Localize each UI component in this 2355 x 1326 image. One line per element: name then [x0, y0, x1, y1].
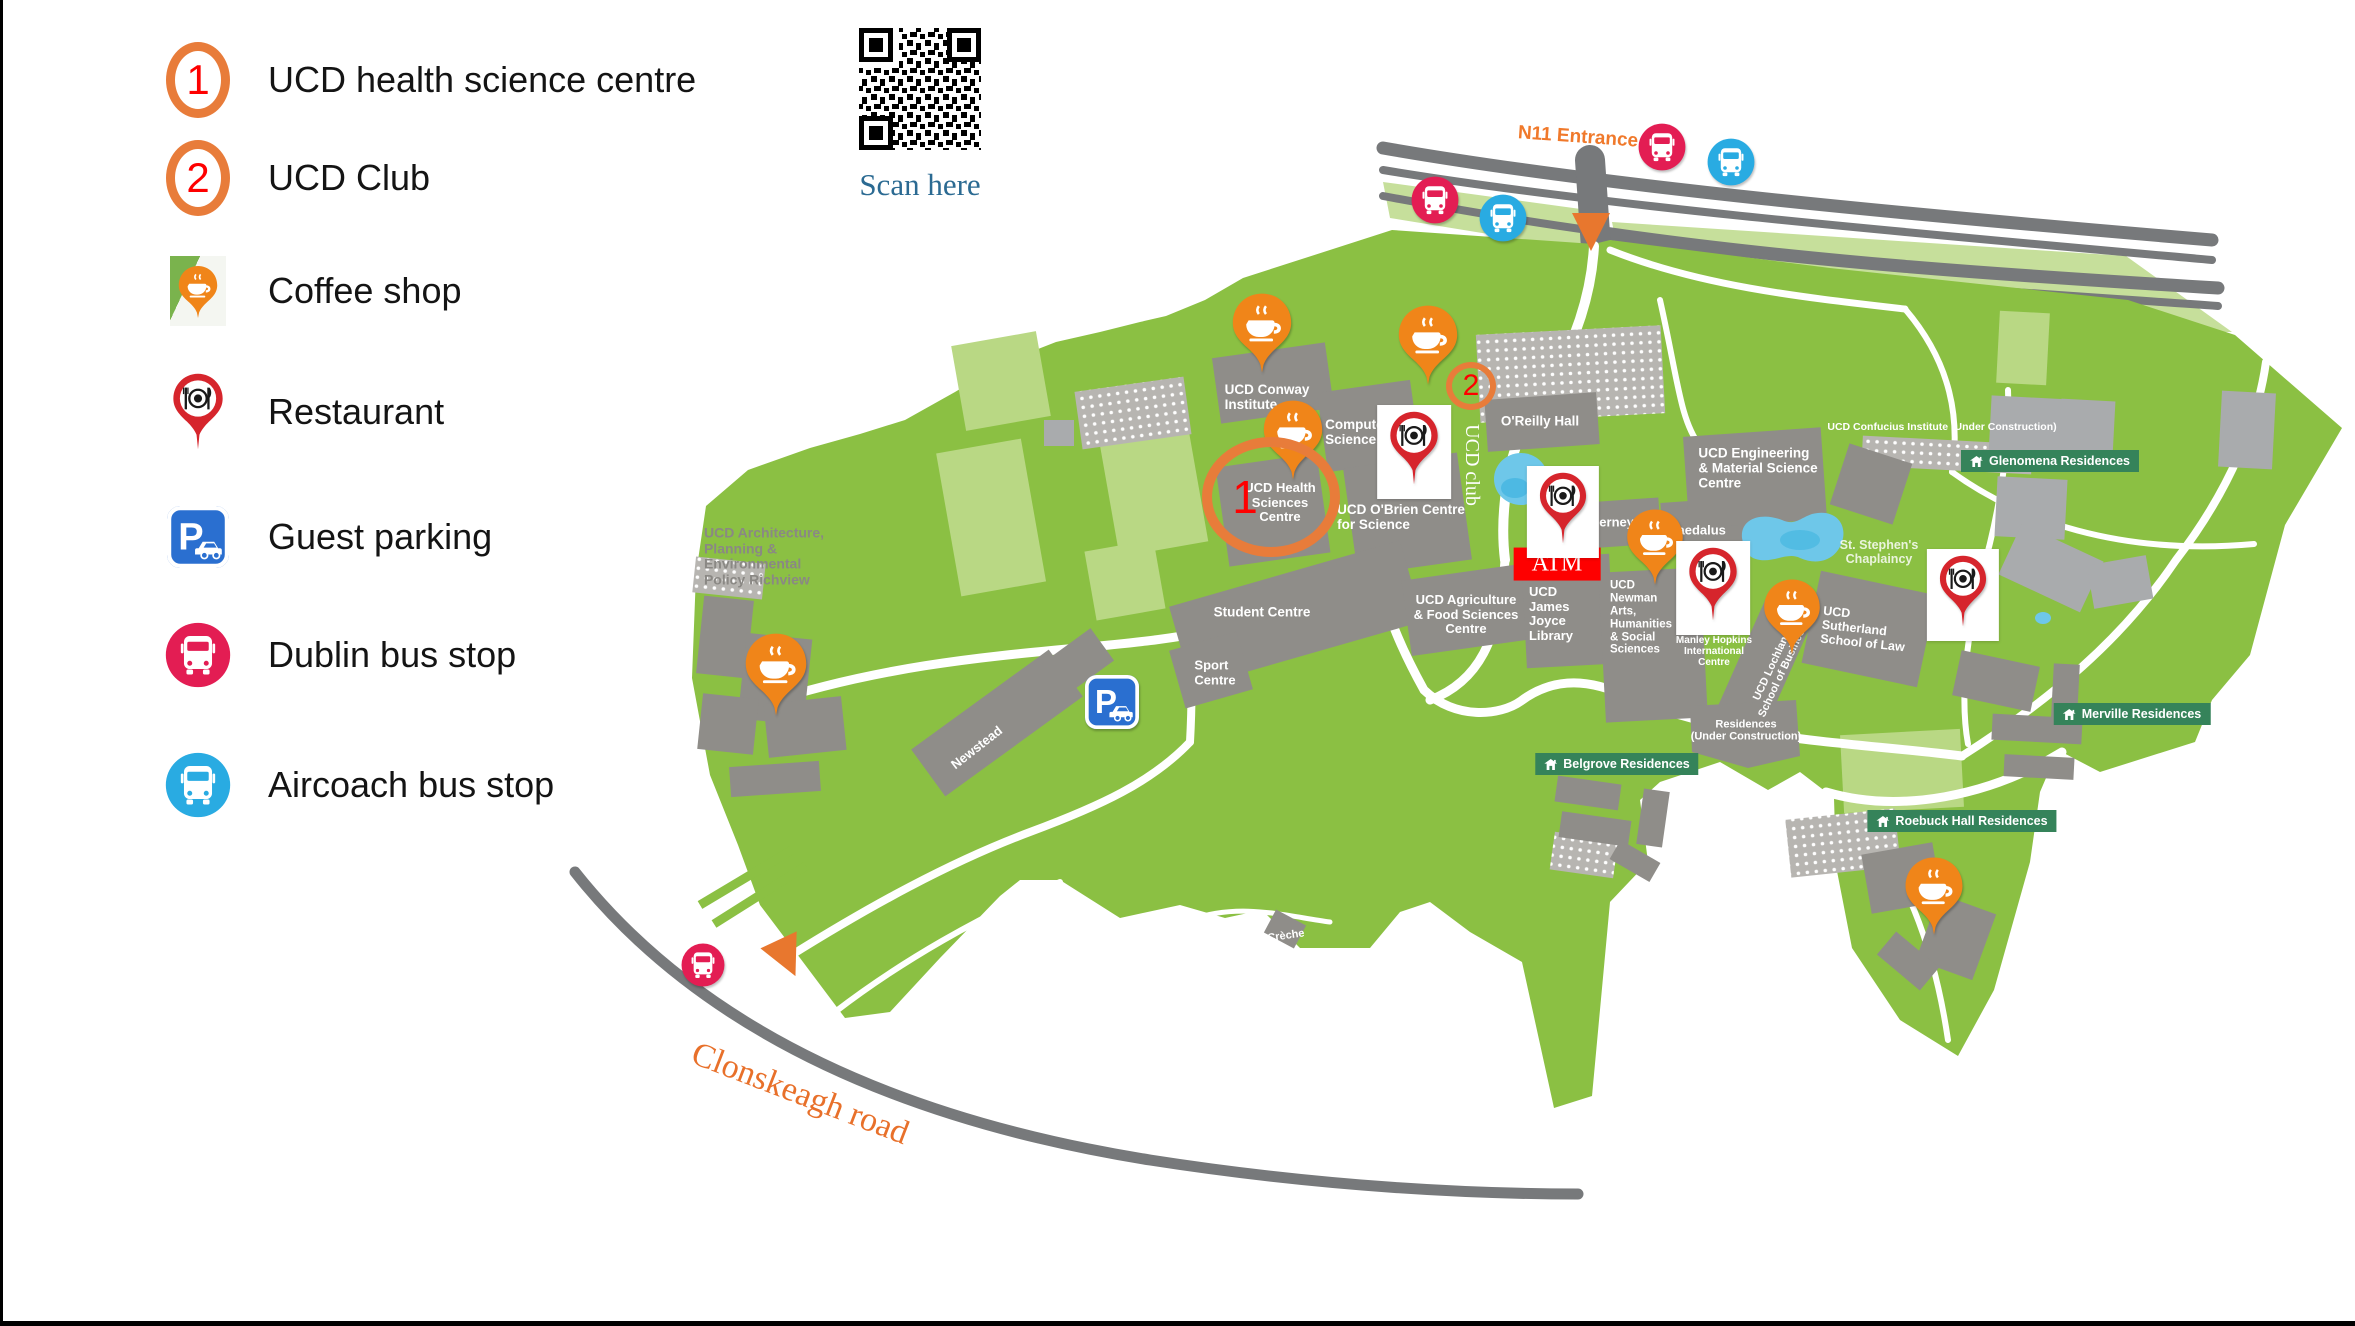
legend-item-aircoach: Aircoach bus stop	[150, 752, 554, 818]
legend-label: Guest parking	[268, 516, 492, 558]
legend-item-ucd-club: 2 UCD Club	[150, 140, 430, 216]
legend-label: Coffee shop	[268, 270, 461, 312]
legend-label: Aircoach bus stop	[268, 764, 554, 806]
numbered-circle-2-icon: 2	[166, 140, 230, 216]
legend-item-health-science: 1 UCD health science centre	[150, 42, 696, 118]
qr-code	[853, 22, 987, 156]
legend-label: Restaurant	[268, 391, 444, 433]
aircoach-bus-icon	[150, 752, 246, 818]
legend-item-restaurant: Restaurant	[150, 370, 444, 453]
restaurant-pin-icon	[150, 370, 246, 453]
slide-edge-bottom	[0, 1321, 2355, 1326]
qr-block: Scan here	[849, 22, 991, 203]
slide-edge-left	[0, 0, 3, 1326]
legend-label: UCD health science centre	[268, 59, 696, 101]
legend-item-parking: P Guest parking	[150, 506, 492, 568]
coffee-shop-icon	[170, 256, 226, 326]
guest-parking-icon: P	[150, 506, 246, 568]
qr-caption: Scan here	[849, 167, 991, 203]
legend-label: UCD Club	[268, 157, 430, 199]
legend-item-dublin-bus: Dublin bus stop	[150, 622, 516, 688]
numbered-circle-1-icon: 1	[166, 42, 230, 118]
legend-item-coffee: Coffee shop	[150, 256, 461, 326]
dublin-bus-icon	[150, 622, 246, 688]
slide: 1 UCD health science centre 2 UCD Club C…	[0, 0, 2355, 1326]
legend-label: Dublin bus stop	[268, 634, 516, 676]
